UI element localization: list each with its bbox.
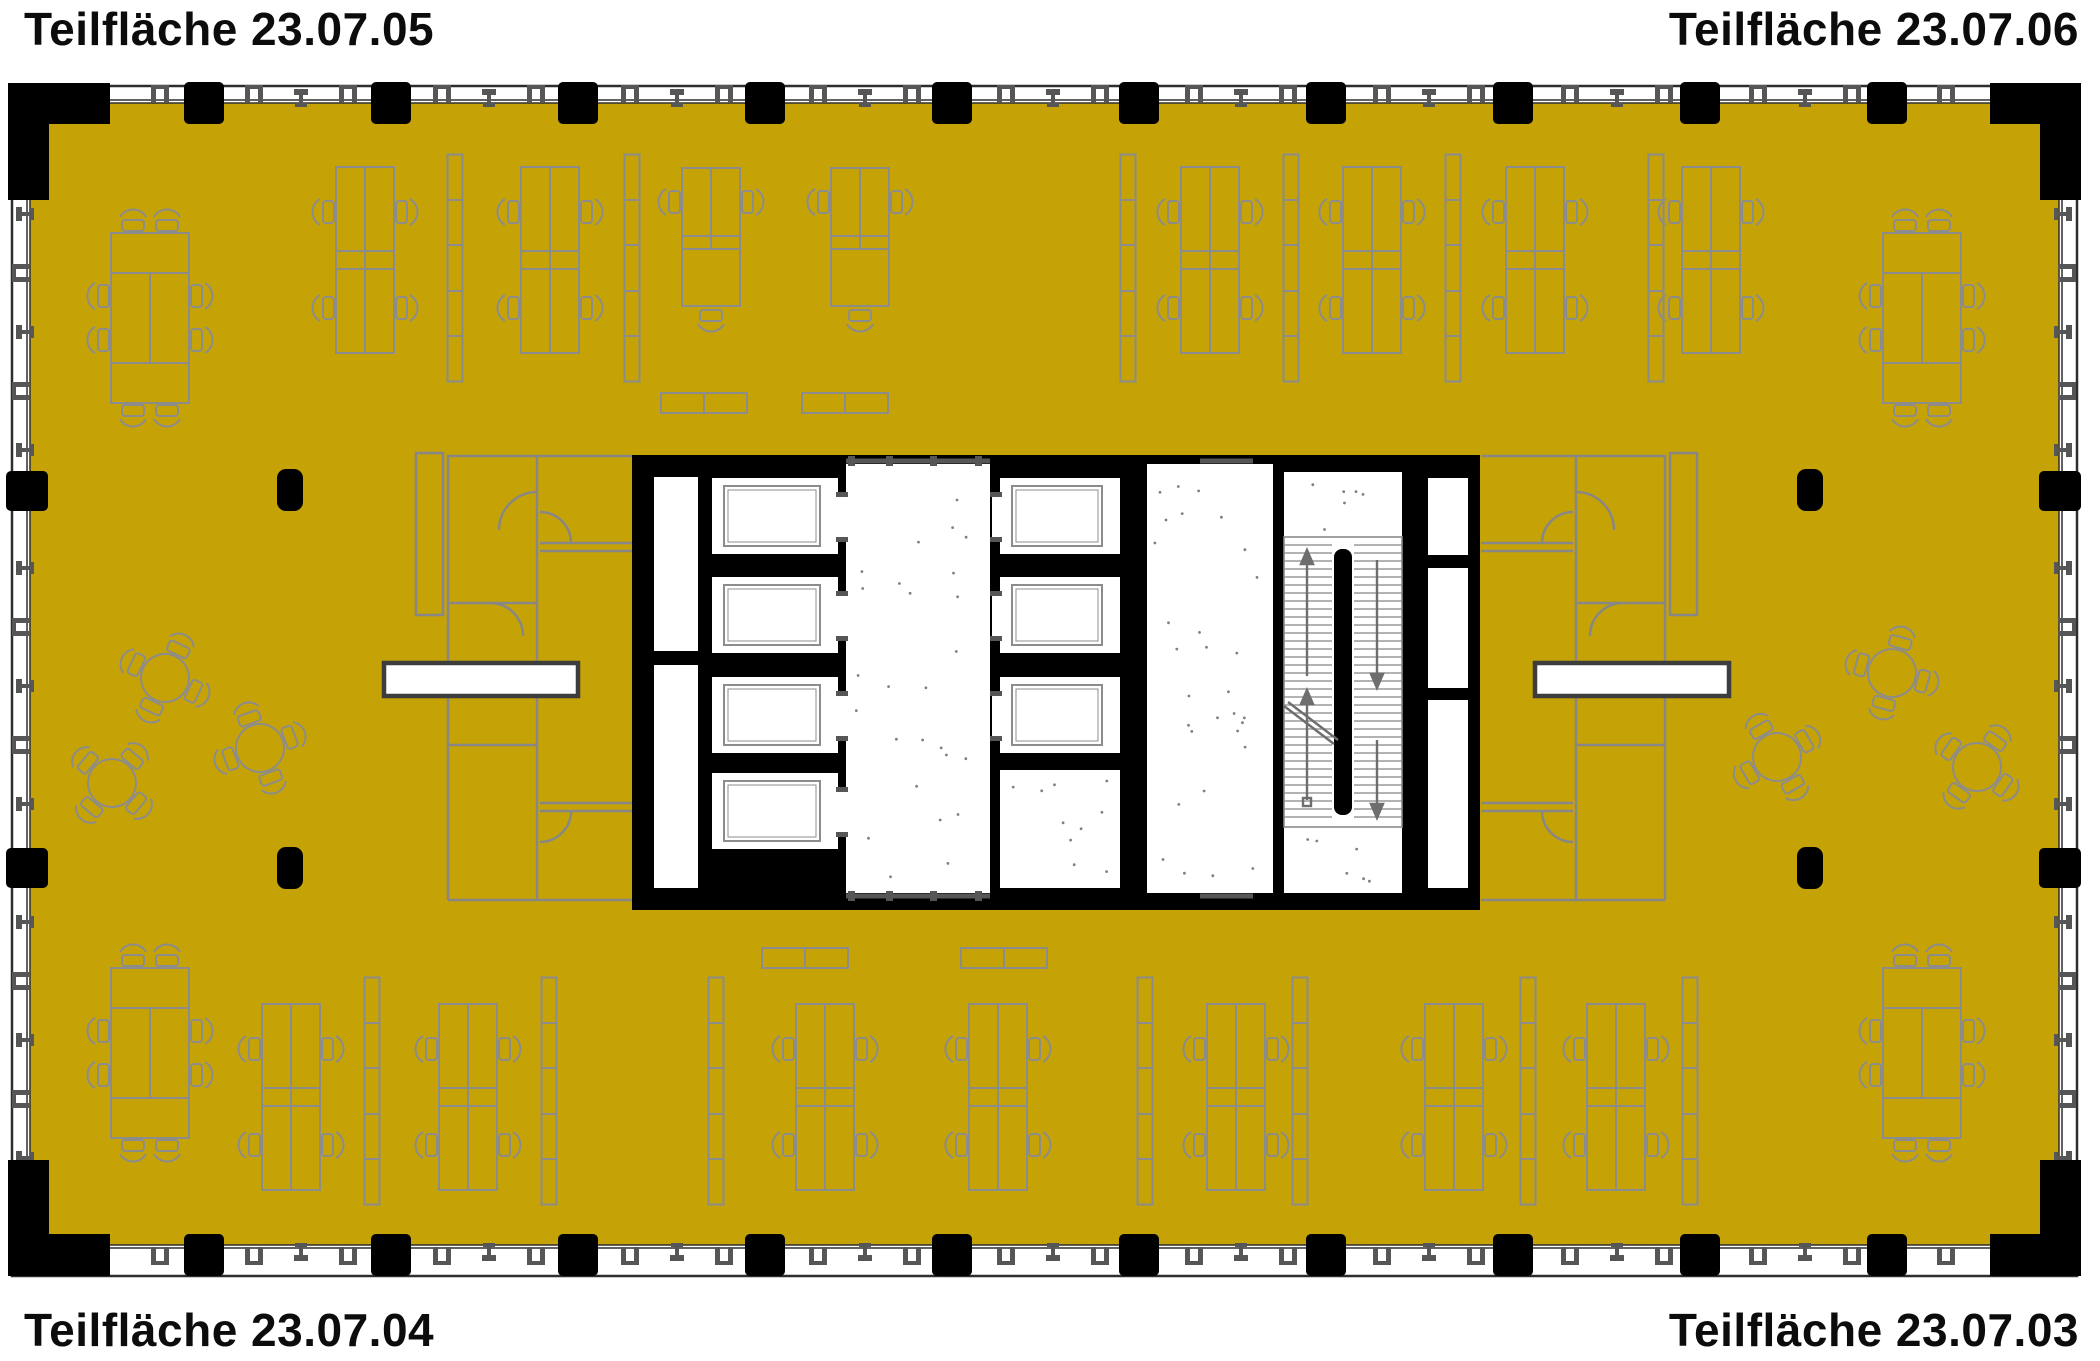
facade-column xyxy=(932,82,972,124)
corridor-bar xyxy=(1535,663,1729,696)
elevator-door xyxy=(838,695,846,737)
area-label-bottom-left: Teilfläche 23.07.04 xyxy=(24,1303,434,1357)
area-label-top-right: Teilfläche 23.07.06 xyxy=(1669,2,2079,56)
facade-mullion-icon xyxy=(2058,618,2076,636)
core-shaft-room xyxy=(1428,700,1468,888)
facade-column xyxy=(371,1234,411,1276)
core-shaft-room xyxy=(654,665,698,888)
core-shaft-room xyxy=(1428,568,1468,688)
facade-mullion-icon xyxy=(2058,736,2076,754)
interior-pillar xyxy=(277,469,303,511)
facade-mullion-icon xyxy=(1749,1247,1767,1265)
elevator-door xyxy=(992,695,1000,737)
facade-mullion-icon xyxy=(1373,1247,1391,1265)
facade-mullion-icon xyxy=(2058,382,2076,400)
facade-mullion-icon xyxy=(903,1247,921,1265)
area-label-top-left: Teilfläche 23.07.05 xyxy=(24,2,434,56)
facade-mullion-icon xyxy=(1610,1243,1624,1261)
facade-column xyxy=(745,1234,785,1276)
facade-mullion-icon xyxy=(670,1243,684,1261)
facade-column xyxy=(932,1234,972,1276)
facade-mullion-icon xyxy=(858,1243,872,1261)
facade-mullion-icon xyxy=(482,1243,496,1261)
facade-mullion-icon xyxy=(1091,1247,1109,1265)
facade-mullion-icon xyxy=(2054,679,2072,693)
interior-pillar xyxy=(277,847,303,889)
facade-column xyxy=(745,82,785,124)
facade-column xyxy=(184,1234,224,1276)
facade-column xyxy=(184,82,224,124)
facade-mullion-icon xyxy=(2054,1033,2072,1047)
facade-column xyxy=(6,848,48,888)
facade-mullion-icon xyxy=(2054,797,2072,811)
facade-mullion-icon xyxy=(2054,207,2072,221)
facade-mullion-icon xyxy=(433,1247,451,1265)
stair-center-wall xyxy=(1334,549,1352,815)
facade-mullion-icon xyxy=(1234,89,1248,107)
facade-mullion-icon xyxy=(1655,1247,1673,1265)
core-service-room xyxy=(1000,770,1120,888)
facade-mullion-icon xyxy=(339,1247,357,1265)
stair-vestibule xyxy=(1147,464,1273,893)
building-core xyxy=(632,455,1480,910)
facade-mullion-icon xyxy=(1467,1247,1485,1265)
facade-column xyxy=(1119,82,1159,124)
facade-mullion-icon xyxy=(16,325,34,339)
facade-mullion-icon xyxy=(16,679,34,693)
elevator-door xyxy=(838,791,846,833)
facade-mullion-icon xyxy=(16,1033,34,1047)
facade-column xyxy=(1493,1234,1533,1276)
facade-mullion-icon xyxy=(1798,1243,1812,1261)
facade-mullion-icon xyxy=(2058,1090,2076,1108)
elevator-door xyxy=(992,496,1000,538)
facade-column xyxy=(558,82,598,124)
elevator-door xyxy=(992,595,1000,637)
facade-mullion-icon xyxy=(2058,264,2076,282)
facade-mullion-icon xyxy=(2054,443,2072,457)
facade-mullion-icon xyxy=(1937,1247,1955,1265)
area-label-bottom-right: Teilfläche 23.07.03 xyxy=(1669,1303,2079,1357)
facade-mullion-icon xyxy=(1422,1243,1436,1261)
facade-mullion-icon xyxy=(16,915,34,929)
facade-column xyxy=(371,82,411,124)
facade-mullion-icon xyxy=(1046,1243,1060,1261)
facade-mullion-icon xyxy=(2058,972,2076,990)
facade-mullion-icon xyxy=(621,1247,639,1265)
facade-mullion-icon xyxy=(16,207,34,221)
facade-mullion-icon xyxy=(997,1247,1015,1265)
facade-mullion-icon xyxy=(294,1243,308,1261)
corridor-bar xyxy=(384,663,578,696)
core-shaft-room xyxy=(654,477,698,651)
facade-mullion-icon xyxy=(1610,89,1624,107)
facade-mullion-icon xyxy=(527,1247,545,1265)
facade-column xyxy=(1867,1234,1907,1276)
facade-column xyxy=(1867,82,1907,124)
facade-mullion-icon xyxy=(1234,1243,1248,1261)
facade-mullion-icon xyxy=(151,1247,169,1265)
facade-column xyxy=(558,1234,598,1276)
facade-mullion-icon xyxy=(2054,561,2072,575)
facade-mullion-icon xyxy=(2054,325,2072,339)
facade-mullion-icon xyxy=(858,89,872,107)
interior-pillar xyxy=(1797,847,1823,889)
facade-column xyxy=(1119,1234,1159,1276)
facade-mullion-icon xyxy=(1843,1247,1861,1265)
elevator-lobby xyxy=(846,464,990,893)
elevator-door xyxy=(838,496,846,538)
facade-mullion-icon xyxy=(1279,1247,1297,1265)
facade-mullion-icon xyxy=(809,1247,827,1265)
facade-mullion-icon xyxy=(1185,1247,1203,1265)
facade-column xyxy=(1306,82,1346,124)
core-shaft-room xyxy=(1428,478,1468,555)
facade-mullion-icon xyxy=(482,89,496,107)
facade-column xyxy=(1680,1234,1720,1276)
floor-plan-drawing xyxy=(0,0,2100,1361)
facade-column xyxy=(2039,848,2081,888)
facade-column xyxy=(1680,82,1720,124)
elevator-door xyxy=(838,595,846,637)
facade-mullion-icon xyxy=(1798,89,1812,107)
facade-mullion-icon xyxy=(16,443,34,457)
facade-column xyxy=(2039,471,2081,511)
facade-mullion-icon xyxy=(1561,1247,1579,1265)
floor-plan-page: Teilfläche 23.07.05 Teilfläche 23.07.06 … xyxy=(0,0,2100,1361)
facade-mullion-icon xyxy=(16,797,34,811)
facade-mullion-icon xyxy=(670,89,684,107)
facade-column xyxy=(6,471,48,511)
interior-pillar xyxy=(1797,469,1823,511)
facade-mullion-icon xyxy=(715,1247,733,1265)
facade-mullion-icon xyxy=(245,1247,263,1265)
facade-mullion-icon xyxy=(1046,89,1060,107)
facade-column xyxy=(1306,1234,1346,1276)
facade-mullion-icon xyxy=(2054,915,2072,929)
facade-mullion-icon xyxy=(16,561,34,575)
facade-mullion-icon xyxy=(294,89,308,107)
facade-mullion-icon xyxy=(1422,89,1436,107)
facade-column xyxy=(1493,82,1533,124)
